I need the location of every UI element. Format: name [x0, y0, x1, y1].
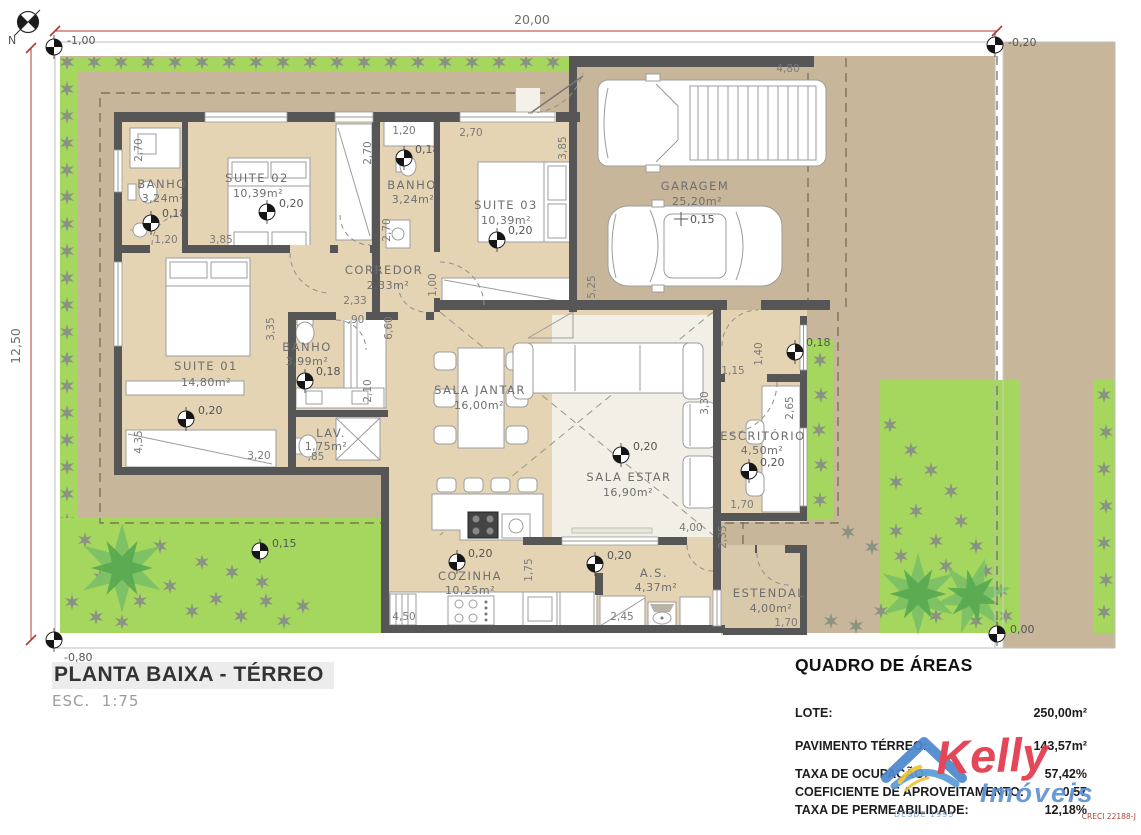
dimension-label: 1,00	[427, 273, 439, 296]
svg-text:SUITE 02: SUITE 02	[225, 171, 289, 185]
row-label: TAXA DE PERMEABILIDADE:	[795, 803, 969, 817]
table-row: COEFICIENTE DE APROVEITAMENTO: 0,57	[795, 785, 1087, 799]
row-value: 12,18%	[1045, 803, 1087, 817]
svg-text:SALA JANTAR: SALA JANTAR	[434, 383, 526, 397]
row-value: 250,00m²	[1033, 706, 1087, 720]
areas-table: QUADRO DE ÁREAS LOTE: 250,00m² PAVIMENTO…	[795, 655, 1087, 821]
entry-walkway	[516, 88, 540, 114]
scale-label: ESC. 1:75	[52, 692, 334, 710]
dimension-label: 1,70	[774, 617, 797, 629]
svg-text:BANHO: BANHO	[387, 178, 437, 192]
dimension-label: 3,30	[699, 391, 711, 414]
level-label: 0,15	[272, 537, 297, 550]
svg-text:10,25m²: 10,25m²	[445, 584, 495, 597]
svg-text:A.S.: A.S.	[640, 566, 668, 580]
dimension-label: 1,20	[154, 234, 177, 246]
svg-text:0,20: 0,20	[468, 547, 493, 560]
svg-text:0,20: 0,20	[279, 197, 304, 210]
table-row: LOTE: 250,00m²	[795, 706, 1087, 720]
dimension-label: 3,35	[265, 317, 277, 340]
dimension-label: ,90	[348, 314, 365, 326]
dimension-label: 2,35	[717, 525, 729, 548]
level-label: -0,20	[1008, 36, 1036, 49]
svg-text:0,20: 0,20	[508, 224, 533, 237]
dimension-label: 4,50	[392, 611, 415, 623]
dimension-label: 12,50	[8, 328, 23, 364]
pickup-truck	[598, 74, 826, 172]
title-block: PLANTA BAIXA - TÉRREO ESC. 1:75	[52, 662, 334, 710]
dimension-label: 2,70	[459, 127, 482, 139]
kitchen-counter	[389, 592, 597, 626]
dimension-label: 2,45	[610, 611, 633, 623]
svg-text:LAV.: LAV.	[316, 426, 346, 440]
tv-rack	[572, 528, 652, 533]
svg-text:14,80m²: 14,80m²	[181, 376, 231, 389]
svg-text:2,33m²: 2,33m²	[367, 279, 410, 292]
dimension-label: 2,70	[362, 141, 374, 164]
dimension-label: 20,00	[514, 12, 550, 27]
dimension-label: 1,40	[753, 342, 765, 365]
dimension-label: 2,70	[381, 218, 393, 241]
dimension-label: 2,65	[784, 396, 796, 419]
svg-text:0,18: 0,18	[316, 365, 341, 378]
dimension-label: 2,70	[133, 138, 145, 161]
cooktop	[468, 512, 498, 538]
svg-text:10,39m²: 10,39m²	[233, 187, 283, 200]
svg-text:3,24m²: 3,24m²	[392, 193, 435, 206]
row-label: LOTE:	[795, 706, 833, 720]
dimension-label: 3,85	[209, 234, 232, 246]
row-value: 57,42%	[1045, 767, 1087, 781]
level-label: 0,00	[1010, 623, 1035, 636]
svg-text:0,20: 0,20	[198, 404, 223, 417]
row-value: 143,57m²	[1033, 739, 1087, 753]
table-row: PAVIMENTO TÉRREO: 143,57m²	[795, 739, 1087, 753]
page-title: PLANTA BAIXA - TÉRREO	[54, 663, 324, 686]
dimension-label: 5,25	[586, 275, 598, 298]
sofa	[513, 343, 703, 399]
svg-text:0,18: 0,18	[415, 143, 440, 156]
dimension-label: 6,60	[383, 316, 395, 339]
svg-text:SALA ESTAR: SALA ESTAR	[586, 470, 671, 484]
dimension-label: 2,10	[362, 379, 374, 402]
svg-text:CORREDOR: CORREDOR	[345, 263, 423, 277]
svg-text:ESCRITÓRIO: ESCRITÓRIO	[720, 428, 806, 443]
table-row: TAXA DE OCUPAÇÃO: 57,42%	[795, 767, 1087, 781]
dimension-label: 1,70	[730, 499, 753, 511]
svg-text:BANHO: BANHO	[282, 340, 332, 354]
dimension-label: 4,00	[679, 522, 702, 534]
svg-text:SUITE 01: SUITE 01	[174, 359, 238, 373]
svg-text:4,00m²: 4,00m²	[750, 602, 793, 615]
svg-text:4,37m²: 4,37m²	[635, 581, 678, 594]
row-value: 0,57	[1063, 785, 1087, 799]
island-sink	[502, 514, 530, 538]
dimension-label: 1,15	[721, 365, 744, 377]
svg-text:GARAGEM: GARAGEM	[661, 179, 730, 193]
svg-text:0,20: 0,20	[633, 440, 658, 453]
svg-text:BANHO: BANHO	[137, 177, 187, 191]
svg-text:ESTENDAL: ESTENDAL	[733, 586, 805, 600]
dimension-label: 3,20	[247, 450, 270, 462]
areas-table-title: QUADRO DE ÁREAS	[795, 655, 1087, 676]
level-label: 0,18	[806, 336, 831, 349]
table-row: TAXA DE PERMEABILIDADE: 12,18%	[795, 803, 1087, 817]
dimension-label: 3,85	[557, 136, 569, 159]
svg-text:16,90m²: 16,90m²	[603, 486, 653, 499]
svg-text:3,24m²: 3,24m²	[142, 192, 185, 205]
floor-plan-page: 20,00 12,50 N -1,00 -0,20 -0,80 0,00 0,1…	[0, 0, 1141, 835]
row-label: TAXA DE OCUPAÇÃO:	[795, 767, 928, 781]
compass-icon: N	[8, 7, 43, 47]
svg-text:0,18: 0,18	[162, 207, 187, 220]
svg-text:COZINHA: COZINHA	[438, 569, 502, 583]
bed-suite-01	[166, 258, 250, 356]
dimension-label: 2,33	[343, 295, 366, 307]
svg-text:0,20: 0,20	[760, 456, 785, 469]
level-label: -1,00	[67, 34, 95, 47]
svg-text:SUITE 03: SUITE 03	[474, 198, 538, 212]
dimension-label: 4,80	[776, 63, 799, 75]
row-label: COEFICIENTE DE APROVEITAMENTO:	[795, 785, 1024, 799]
dimension-label: 4,35	[133, 430, 145, 453]
level-marker	[987, 33, 1003, 57]
level-marker	[46, 35, 62, 59]
row-label: PAVIMENTO TÉRREO:	[795, 739, 927, 753]
svg-text:16,00m²: 16,00m²	[454, 399, 504, 412]
svg-text:0,15: 0,15	[690, 213, 715, 226]
north-label: N	[8, 34, 16, 47]
svg-text:25,20m²: 25,20m²	[672, 195, 722, 208]
dimension-label: ,85	[308, 451, 325, 463]
svg-text:0,20: 0,20	[607, 549, 632, 562]
dimension-label: 1,20	[392, 125, 415, 137]
dimension-label: 1,75	[523, 558, 535, 581]
